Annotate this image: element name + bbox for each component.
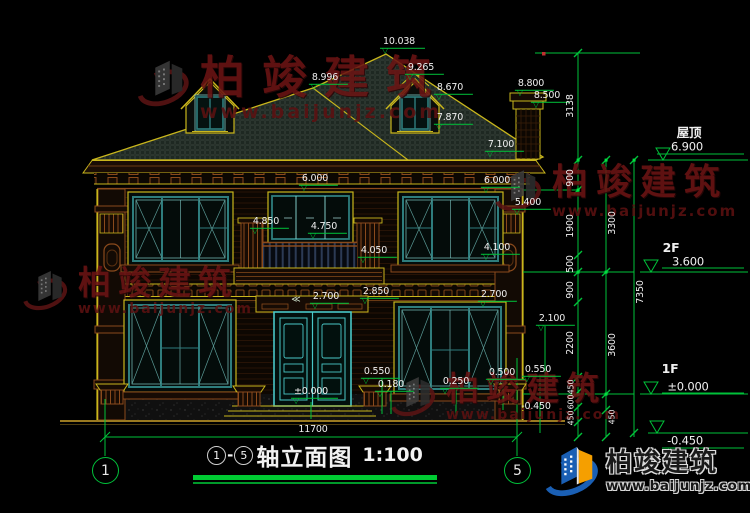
title-underline-thin [193,482,437,484]
window-1f-right [390,302,510,401]
brand-logo-icon [542,442,600,500]
drawing-title: 轴立面图 [256,438,352,472]
drawing-scale: 1:100 [362,444,422,466]
house-elevation-linework [0,0,750,513]
window-2f-left [121,192,239,272]
title-axis-start: 1 [207,446,226,465]
axis-number: 1 [101,463,110,479]
window-2f-right [391,192,509,272]
dentil-band [94,173,530,184]
title-axis-end: 5 [234,446,253,465]
door-cornice [256,296,368,312]
cad-elevation-drawing: 柏竣建筑 www.baijunjz.com 柏竣建筑 www.baijunjz.… [0,0,750,513]
title-separator: - [227,446,233,464]
entrance-door [274,312,351,406]
axis-number: 5 [513,463,522,479]
brand-name: 柏竣建筑 [606,448,750,479]
brand-logo: 柏竣建筑 www.baijunjz.com [542,442,750,500]
frieze-band [127,284,497,296]
brand-website: www.baijunjz.com [606,479,750,494]
window-1f-left [118,300,240,399]
french-window [268,192,353,243]
axis-bubble-left: 1 [92,457,119,484]
red-node [542,52,546,56]
axis-bubble-right: 5 [504,457,531,484]
eave-cornice [83,161,545,189]
title-underline [193,475,437,480]
drawing-title-block: 1 - 5 轴立面图 1:100 [193,438,437,484]
